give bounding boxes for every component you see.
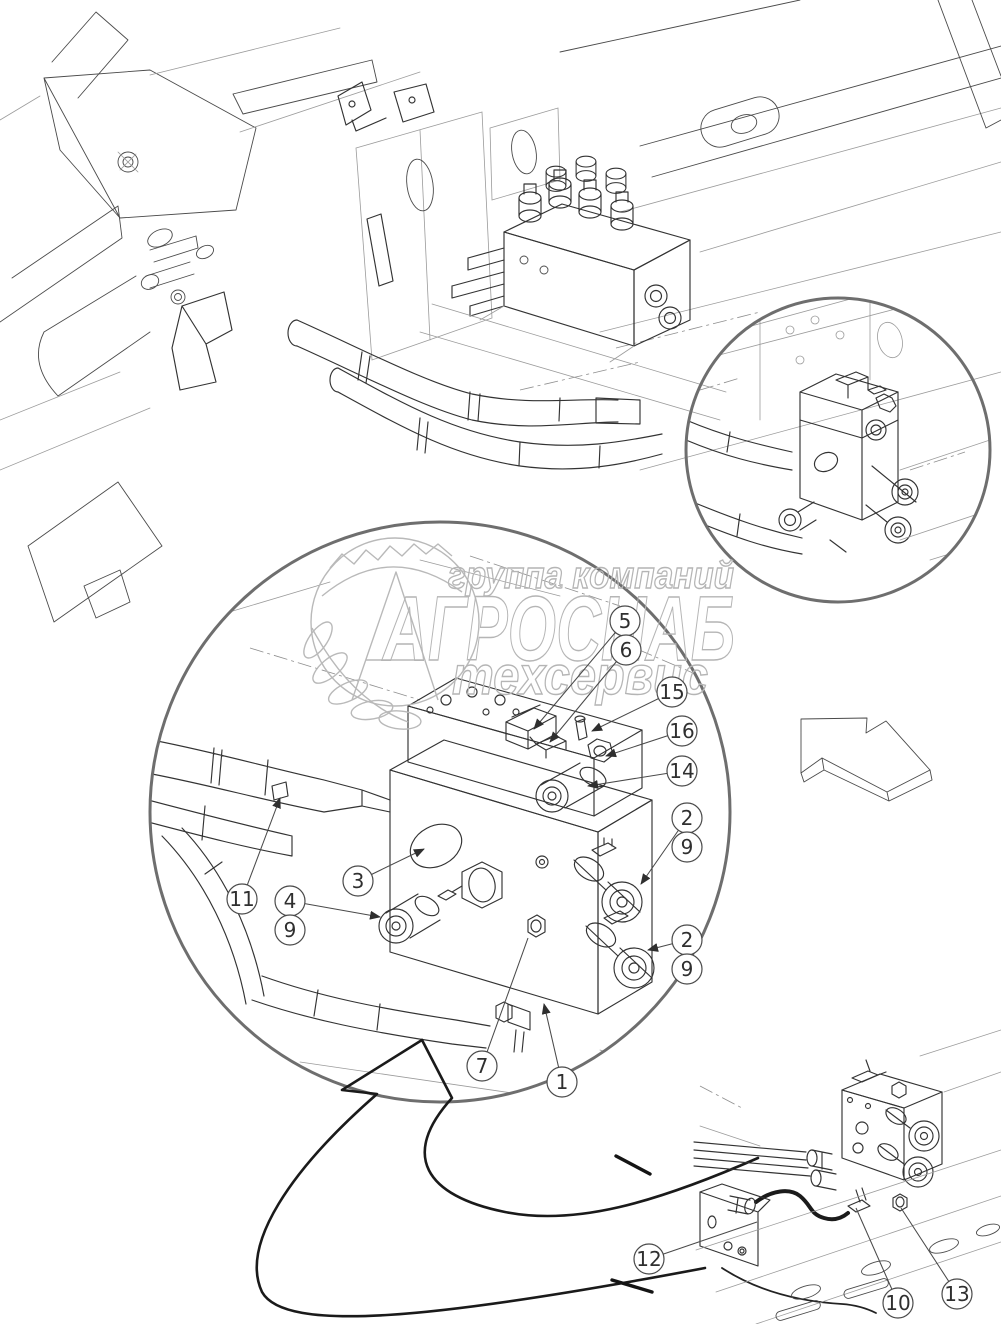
callout-number-3-10: 3	[352, 869, 365, 893]
detail-circle-top-right	[686, 270, 1001, 602]
callout-number-13-17: 13	[944, 1282, 969, 1306]
inset-valve-block	[842, 1060, 942, 1211]
callout-number-16-3: 16	[669, 719, 694, 743]
bundle-fittings	[807, 1150, 836, 1190]
callout-number-2-7: 2	[681, 928, 694, 952]
clamp-brackets	[338, 82, 434, 131]
direction-arrow-3d	[801, 718, 932, 801]
callout-number-9-6: 9	[681, 835, 694, 859]
callout-number-11-9: 11	[229, 887, 254, 911]
frame-linework-top-left	[0, 12, 420, 622]
callout-leader-12-15	[649, 1222, 757, 1259]
hose-end-fittings	[728, 1188, 870, 1215]
bottom-right-inset	[612, 1030, 1001, 1324]
hydraulic-couplers	[139, 225, 216, 304]
callout-number-4-11: 4	[284, 889, 297, 913]
parts-diagram-canvas: группа компаний АГРОСНАБ техсервис	[0, 0, 1001, 1324]
callout-number-2-5: 2	[681, 806, 694, 830]
callout-number-9-8: 9	[681, 957, 694, 981]
callout-number-15-2: 15	[659, 680, 684, 704]
hydraulic-hoses	[288, 304, 726, 469]
callout-number-12-15: 12	[636, 1247, 661, 1271]
callout-number-14-4: 14	[669, 759, 694, 783]
callout-number-10-16: 10	[885, 1291, 910, 1315]
callout-leader-7-13	[482, 938, 528, 1066]
main-valve-assembly	[452, 156, 690, 362]
solenoid-valves	[519, 156, 633, 230]
parts-diagram-page: группа компаний АГРОСНАБ техсервис	[0, 0, 1001, 1324]
callout-number-5-0: 5	[619, 609, 632, 633]
callout-number-6-1: 6	[620, 638, 633, 662]
callout-number-9-12: 9	[284, 918, 297, 942]
callout-number-7-13: 7	[476, 1054, 489, 1078]
inset-sub-plate	[700, 1184, 770, 1266]
callout-leader-11-9	[242, 798, 280, 899]
callout-number-1-14: 1	[556, 1070, 569, 1094]
